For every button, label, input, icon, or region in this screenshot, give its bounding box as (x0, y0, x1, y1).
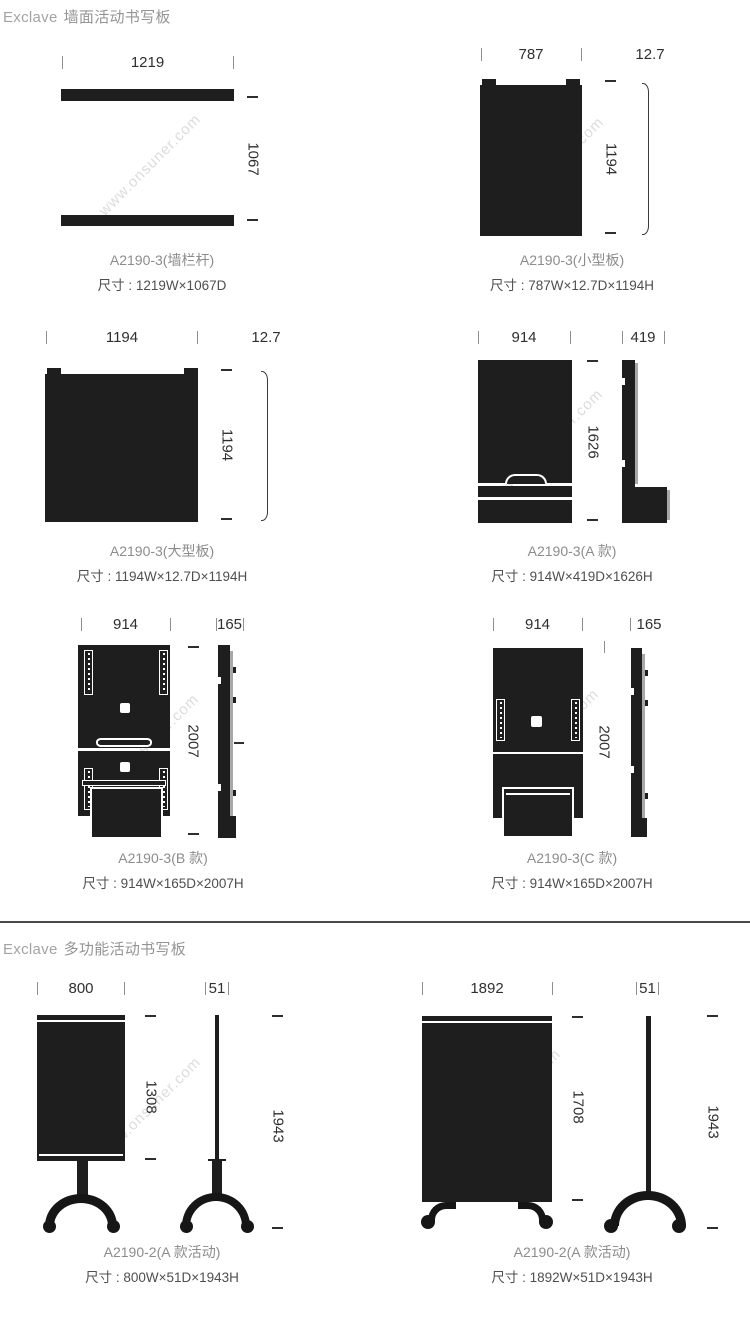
dimension-dash (188, 833, 199, 835)
model-name: A2190-3(小型板) (520, 250, 624, 270)
dimension-tick (664, 331, 665, 344)
height-dimension: 2007 (596, 725, 613, 758)
model-size: 尺寸 : 800W×51D×1943H (85, 1266, 239, 1286)
side-bump (233, 790, 236, 796)
dimension-dash (234, 742, 244, 744)
side-notch (622, 378, 625, 385)
side-edge-shade (642, 654, 645, 828)
caster-wheel (539, 1215, 553, 1229)
model-size: 尺寸 : 914W×419D×1626H (491, 565, 652, 585)
section2-title: 多功能活动书写板 (64, 941, 186, 958)
caster-wheel (604, 1219, 618, 1233)
upper-board-front (493, 648, 583, 752)
brand-text: Exclave (3, 941, 58, 958)
width-dimension: 1219 (62, 55, 233, 71)
pedestal-arch-side (182, 1193, 250, 1226)
depth-dimension: 165 (216, 617, 243, 633)
handle (96, 738, 152, 747)
dimension-dash (572, 1016, 583, 1018)
handle (505, 474, 547, 484)
section1-header: Exclave墙面活动书写板 (3, 6, 171, 27)
dimension-dash (221, 518, 232, 520)
dimension-dash (247, 219, 258, 221)
dimension-tick (243, 618, 244, 631)
tray-rail (478, 486, 572, 497)
height-dimension: 1626 (585, 425, 602, 458)
model-size: 尺寸 : 1892W×51D×1943H (491, 1266, 652, 1286)
height-dimension: 1194 (219, 429, 236, 461)
dimension-brace (642, 83, 649, 235)
side-notch (622, 460, 625, 467)
dimension-dash (145, 1158, 156, 1160)
width-dimension: 787 (481, 47, 581, 63)
board-height-dimension: 1308 (143, 1080, 160, 1113)
depth-dimension: 1067 (245, 142, 262, 175)
side-edge-shade (667, 490, 670, 520)
model-name: A2190-3(A 款) (528, 541, 617, 561)
side-notch (218, 677, 221, 684)
side-bump (233, 697, 236, 703)
lock-button (531, 716, 542, 727)
model-size: 尺寸 : 1219W×1067D (98, 274, 227, 294)
side-notch (218, 784, 221, 791)
section-divider (0, 921, 750, 923)
rail-bottom (61, 215, 234, 226)
model-name: A2190-2(A 款活动) (514, 1242, 631, 1262)
rail-top (61, 89, 234, 101)
model-name: A2190-2(A 款活动) (104, 1242, 221, 1262)
pedestal-arch (45, 1194, 117, 1226)
dimension-tick (581, 48, 582, 61)
caster-wheel (180, 1220, 193, 1233)
caster-wheel (107, 1220, 120, 1233)
mount-strip (571, 699, 580, 741)
board-front-view (422, 1016, 552, 1202)
lock-button (120, 703, 130, 713)
side-bump (645, 793, 648, 799)
side-foot (635, 818, 647, 837)
dimension-dash (188, 646, 199, 648)
depth-dimension: 51 (636, 981, 659, 997)
board-bottom-rail (39, 1154, 123, 1156)
mount-strip (84, 650, 93, 695)
dimension-dash (707, 1015, 718, 1017)
watermark-text: www.onsuner.com (96, 111, 205, 220)
side-bump (645, 700, 648, 706)
dimension-tick (170, 618, 171, 631)
dimension-dash (272, 1015, 283, 1017)
board-side-view (631, 648, 642, 837)
side-notch (631, 766, 634, 773)
tray-front (90, 787, 163, 837)
dimension-dash (221, 369, 232, 371)
board-front-view (45, 374, 198, 522)
side-edge-shade (635, 363, 638, 484)
depth-dimension: 165 (633, 617, 665, 633)
model-size: 尺寸 : 1194W×12.7D×1194H (77, 565, 248, 585)
dimension-tick (582, 618, 583, 631)
base-front (478, 500, 572, 523)
section1-title: 墙面活动书写板 (64, 9, 171, 26)
board-top-rail (37, 1020, 125, 1022)
mount-strip (159, 650, 168, 695)
width-dimension: 914 (478, 330, 570, 346)
dimension-dash (605, 80, 616, 82)
dimension-dash (587, 519, 598, 521)
caster-wheel (241, 1220, 254, 1233)
dimension-dash (587, 360, 598, 362)
dimension-tick (604, 641, 605, 653)
dimension-dash (145, 1015, 156, 1017)
brand-text: Exclave (3, 9, 58, 26)
dimension-dash (247, 96, 258, 98)
pedestal-column-side (212, 1161, 222, 1196)
side-edge-shade (230, 651, 233, 831)
depth-dimension: 419 (622, 330, 664, 346)
dimension-tick (552, 982, 553, 995)
dimension-dash (272, 1227, 283, 1229)
board-front-view (37, 1015, 125, 1161)
model-name: A2190-3(墙栏杆) (110, 250, 214, 270)
board-side-view (218, 645, 230, 838)
board-top-rail (422, 1021, 552, 1023)
pole-side-view (215, 1015, 219, 1160)
tray-lip (506, 793, 570, 795)
width-dimension: 800 (37, 981, 125, 997)
side-foot (223, 816, 236, 838)
dimension-brace (261, 371, 268, 521)
width-dimension: 1194 (46, 330, 198, 346)
dimension-tick (570, 331, 571, 344)
width-dimension: 914 (81, 617, 170, 633)
model-size: 尺寸 : 914W×165D×2007H (82, 872, 243, 892)
model-name: A2190-3(B 款) (118, 848, 207, 868)
tray-rail (82, 780, 166, 786)
section2-header: Exclave多功能活动书写板 (3, 938, 186, 959)
depth-dimension: 12.7 (236, 330, 296, 346)
height-dimension: 2007 (185, 724, 202, 757)
width-dimension: 914 (493, 617, 582, 633)
base-side-view (622, 487, 667, 523)
dimension-tick (630, 618, 631, 631)
catalog-page: Exclave墙面活动书写板 1219 www.onsuner.com 1067… (0, 0, 750, 1328)
side-notch (631, 688, 634, 695)
dimension-tick (233, 56, 234, 69)
side-bump (233, 667, 236, 673)
board-front-view (480, 85, 582, 236)
mount-strip (496, 699, 505, 741)
height-dimension: 1943 (270, 1109, 287, 1142)
board-front-view (478, 360, 572, 483)
model-size: 尺寸 : 914W×165D×2007H (491, 872, 652, 892)
model-name: A2190-3(C 款) (527, 848, 617, 868)
lock-button (120, 762, 130, 772)
caster-wheel (672, 1219, 686, 1233)
caster-wheel (43, 1220, 56, 1233)
depth-dimension: 12.7 (619, 47, 681, 63)
height-dimension: 1943 (705, 1105, 722, 1138)
pole-side-view (646, 1016, 651, 1194)
height-dimension: 1194 (603, 143, 620, 175)
model-name: A2190-3(大型板) (110, 541, 214, 561)
caster-wheel (421, 1215, 435, 1229)
depth-dimension: 51 (205, 981, 229, 997)
dimension-dash (707, 1227, 718, 1229)
board-height-dimension: 1708 (570, 1090, 587, 1123)
dimension-dash (572, 1199, 583, 1201)
model-size: 尺寸 : 787W×12.7D×1194H (490, 274, 654, 294)
side-bump (645, 670, 648, 676)
dimension-dash (605, 232, 616, 234)
width-dimension: 1892 (422, 981, 552, 997)
